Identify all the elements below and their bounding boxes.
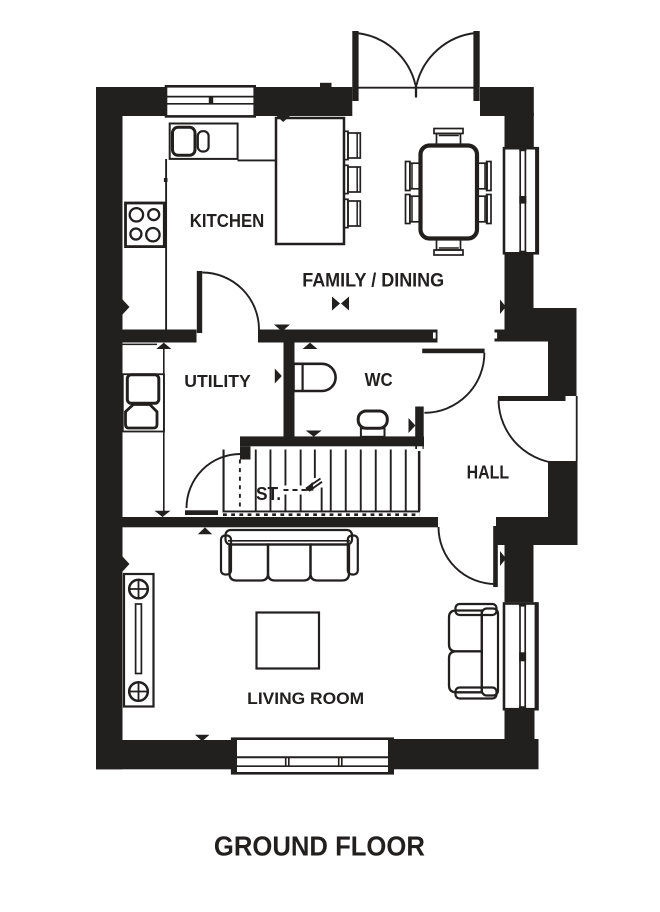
svg-text:GROUND FLOOR: GROUND FLOOR [214,831,425,862]
svg-text:LIVING ROOM: LIVING ROOM [247,689,364,708]
svg-text:WC: WC [365,369,393,390]
svg-text:KITCHEN: KITCHEN [190,210,265,231]
svg-text:HALL: HALL [467,462,510,483]
svg-text:FAMILY / DINING: FAMILY / DINING [302,270,444,291]
svg-text:UTILITY: UTILITY [184,371,251,391]
svg-text:ST.: ST. [256,484,281,505]
